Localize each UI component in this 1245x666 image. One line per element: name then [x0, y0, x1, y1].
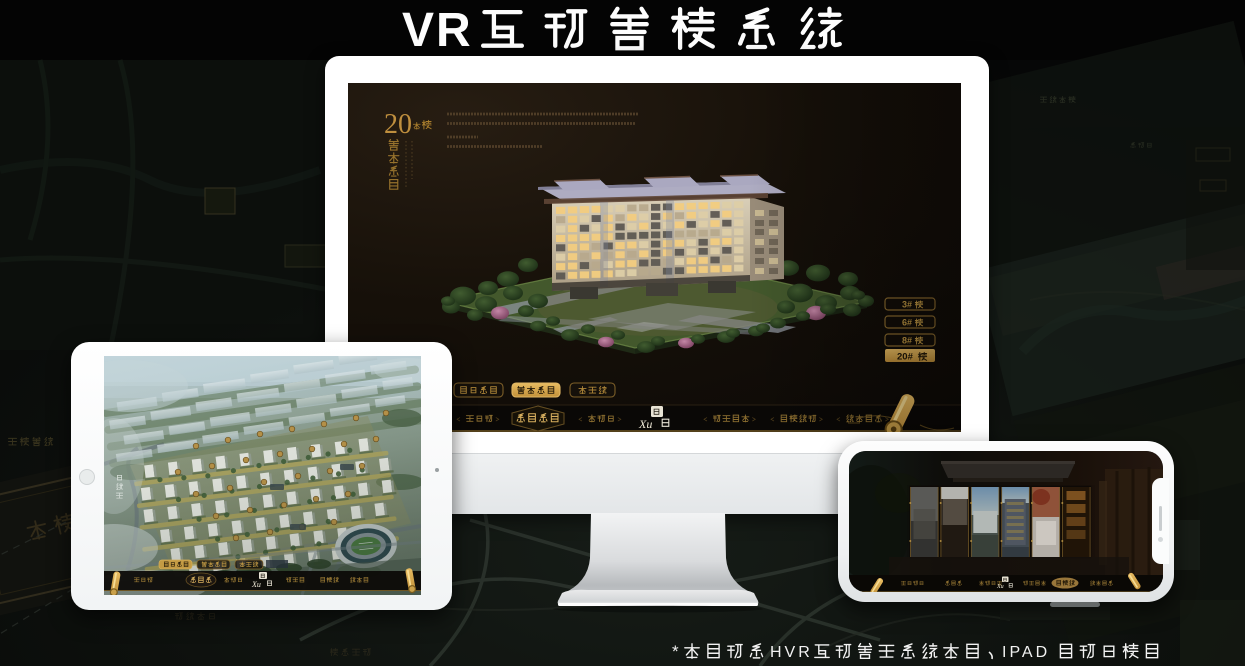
svg-text:IPAD: IPAD: [1002, 644, 1050, 661]
svg-text:Xu: Xu: [996, 584, 1004, 590]
svg-text:Xu: Xu: [638, 417, 652, 431]
svg-text:20: 20: [384, 109, 412, 140]
svg-text:VR: VR: [402, 4, 473, 57]
svg-text:Xu: Xu: [251, 580, 261, 589]
svg-text:HVR: HVR: [770, 644, 813, 661]
svg-text:*: *: [672, 642, 679, 661]
